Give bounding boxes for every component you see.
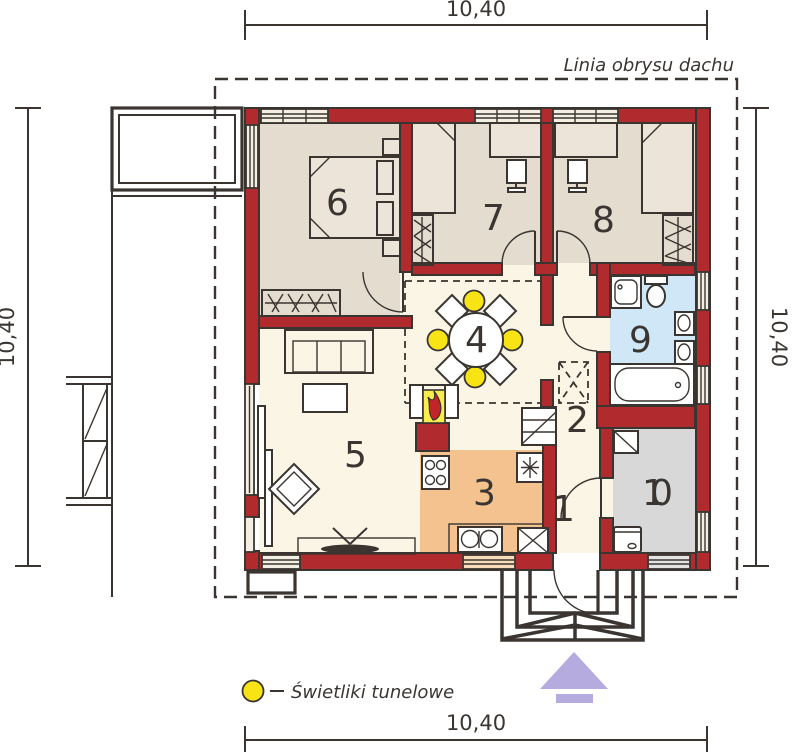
dimension-bottom: 10,40 [245, 711, 707, 752]
dim-bottom-value: 10,40 [446, 711, 506, 735]
dim-right-value: 10,40 [767, 307, 791, 367]
entrance-door [554, 570, 598, 614]
floor-plan-page: 10,40 10,40 10,40 10,40 Linia obrysu dac… [0, 0, 800, 753]
window-icon [697, 512, 709, 552]
shower-icon [611, 276, 641, 308]
window-icon [697, 272, 709, 310]
exterior-steps-icon [66, 377, 112, 505]
room-label-4: 4 [465, 320, 487, 361]
stove-icon [422, 456, 449, 489]
dimension-left: 10,40 [0, 108, 41, 566]
entrance-steps-icon [502, 570, 643, 640]
window-icon [463, 555, 515, 569]
room-label-3: 3 [473, 473, 495, 514]
floor-plan-drawing: 10,40 10,40 10,40 10,40 Linia obrysu dac… [0, 0, 800, 753]
exterior-pad [248, 572, 295, 593]
room-label-9: 9 [629, 320, 651, 361]
computer-monitor-icon [507, 160, 526, 192]
roof-outline-label: Linia obrysu dachu [564, 55, 734, 76]
window-icon [246, 125, 258, 188]
dimension-right: 10,40 [743, 108, 791, 566]
computer-monitor-icon [568, 160, 587, 192]
skylight-icon [428, 330, 449, 351]
window-icon [262, 555, 300, 569]
room-label-8: 8 [592, 200, 614, 241]
sink-icon [675, 341, 694, 364]
legend: Świetliki tunelowe [243, 681, 455, 704]
double-bed-icon [310, 157, 400, 238]
dim-left-value: 10,40 [0, 307, 19, 367]
skylight-legend-icon [243, 681, 264, 702]
fridge-icon [517, 453, 543, 482]
bed-icon [642, 123, 693, 213]
window-icon [261, 109, 328, 123]
window-icon [553, 109, 618, 123]
window-icon [475, 109, 541, 123]
entrance-arrow-icon [540, 652, 608, 703]
sink-icon [675, 312, 694, 335]
cupboard-icon [518, 528, 548, 553]
desk-icon [490, 123, 541, 157]
room-label-10: 10 [642, 473, 672, 514]
room-label-6: 6 [326, 183, 348, 224]
bathtub-icon [610, 364, 694, 405]
room-label-7: 7 [482, 198, 504, 239]
boiler-icon [614, 527, 641, 552]
desk-icon [555, 123, 617, 157]
room-label-2: 2 [566, 400, 588, 441]
pantry-shelf-icon [522, 408, 556, 445]
room-label-5: 5 [344, 435, 366, 476]
dim-top-value: 10,40 [446, 0, 506, 21]
room-label-1: 1 [552, 489, 574, 530]
corner-shelf-icon [614, 431, 638, 453]
legend-label: Świetliki tunelowe [291, 681, 454, 703]
window-icon [648, 555, 690, 569]
terrace [112, 108, 242, 597]
bed-icon [412, 123, 455, 213]
coffee-table-icon [303, 384, 347, 412]
skylight-icon [502, 330, 523, 351]
nightstand-icon [383, 139, 400, 155]
window-icon [697, 366, 709, 404]
dimension-top: 10,40 [245, 0, 707, 40]
toilet-icon [645, 276, 667, 307]
nightstand-icon [383, 240, 400, 256]
